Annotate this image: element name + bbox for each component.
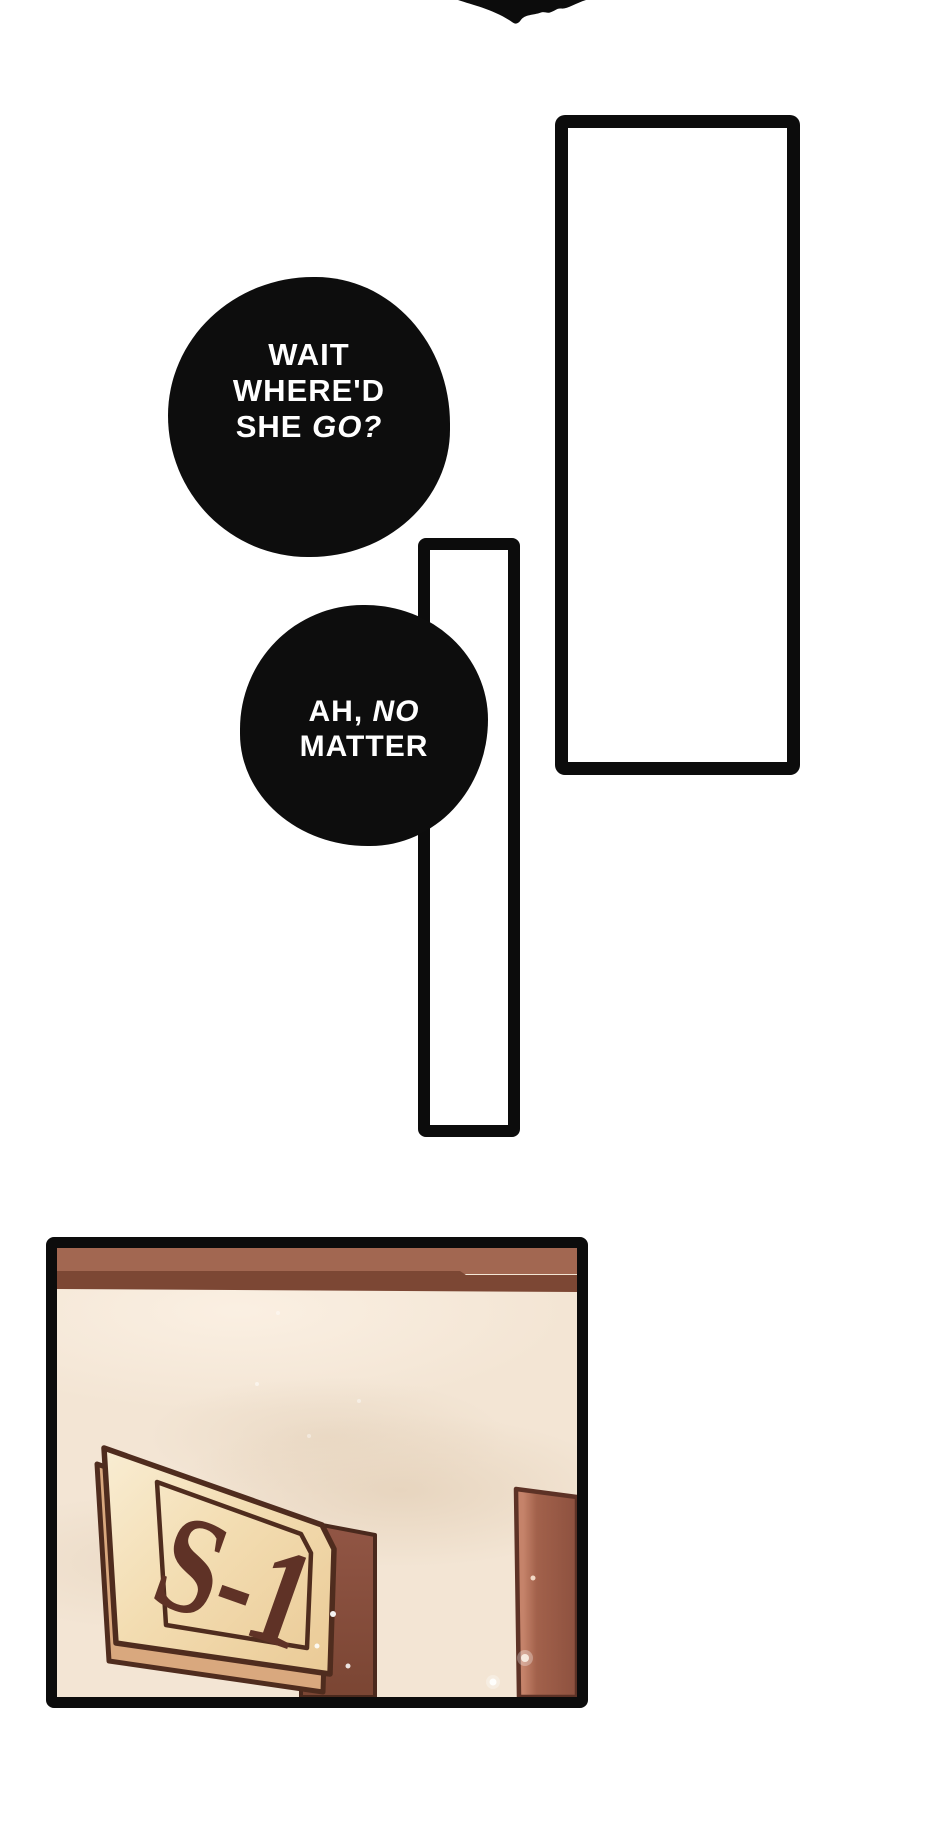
speech-bubble-first: WAIT WHERE'D SHE GO? — [168, 277, 450, 557]
hair-tip-shape — [455, 0, 595, 30]
comic-page: WAIT WHERE'D SHE GO? AH, NO MATTER — [0, 0, 940, 1843]
empty-panel-tall — [555, 115, 800, 775]
bubble2-line1b: NO — [373, 695, 420, 728]
bubble1-line3a: SHE — [236, 409, 303, 444]
bubble1-line3b: GO? — [312, 409, 382, 444]
bubble1-line2: WHERE'D — [233, 373, 385, 408]
bubble2-line2: MATTER — [300, 730, 429, 763]
speech-bubble-second: AH, NO MATTER — [240, 605, 488, 846]
illustrated-panel-art: S-1 — [57, 1248, 577, 1697]
door-beam — [57, 1248, 577, 1274]
speech-text-second: AH, NO MATTER — [300, 688, 429, 764]
speech-text-first: WAIT WHERE'D SHE GO? — [233, 337, 385, 497]
bubble2-line1a: AH, — [308, 695, 363, 728]
door-beam-shadow — [57, 1271, 577, 1292]
hair-tip-path — [458, 0, 586, 24]
bubble1-line1: WAIT — [268, 337, 350, 372]
